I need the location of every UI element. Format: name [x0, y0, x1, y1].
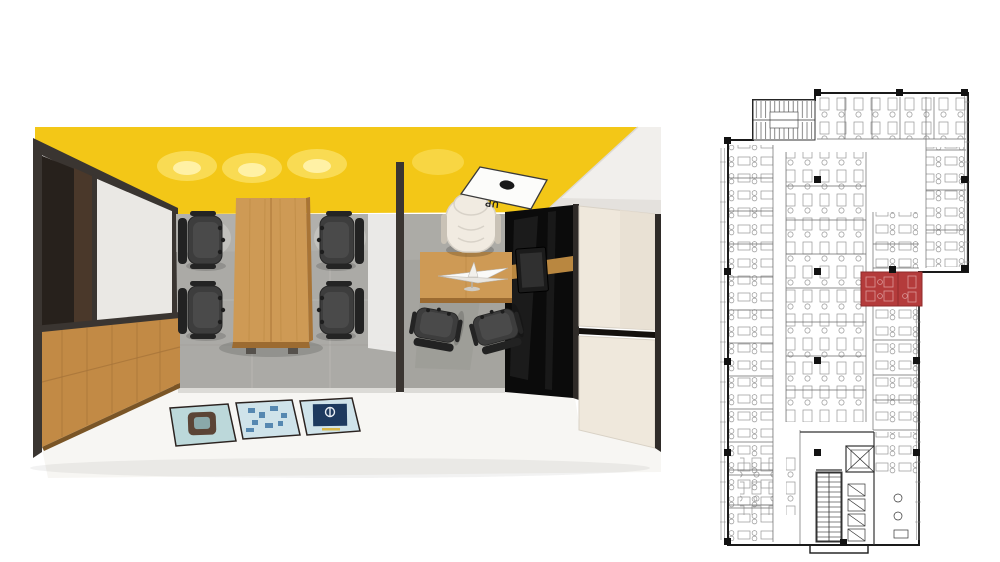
render-figure: UP: [20, 108, 670, 498]
canvas: UP: [0, 0, 1000, 562]
meeting-chair: [316, 281, 364, 341]
meeting-chair: [178, 211, 226, 271]
artwork-frame-2: [236, 400, 300, 439]
up-sign-label: UP: [484, 198, 500, 210]
plan-furniture: [729, 97, 967, 541]
stair-run-icon: [816, 472, 842, 542]
toilet-stalls: [848, 484, 908, 541]
render-svg: UP: [20, 108, 670, 498]
office-desk: [420, 252, 512, 303]
elevator-icon: [846, 446, 874, 472]
artwork-frame-3: [300, 398, 360, 435]
meeting-chair: [178, 281, 226, 341]
sliding-panels: [573, 204, 661, 452]
stairs-icon: [753, 100, 815, 140]
media-unit: [505, 205, 573, 398]
meeting-chair: [316, 211, 364, 271]
artwork-frame-1: [170, 404, 236, 446]
highlighted-room: [861, 272, 922, 306]
floorplan-svg: [700, 80, 1000, 562]
floorplan-figure: [700, 80, 1000, 562]
monitor: [516, 247, 549, 293]
